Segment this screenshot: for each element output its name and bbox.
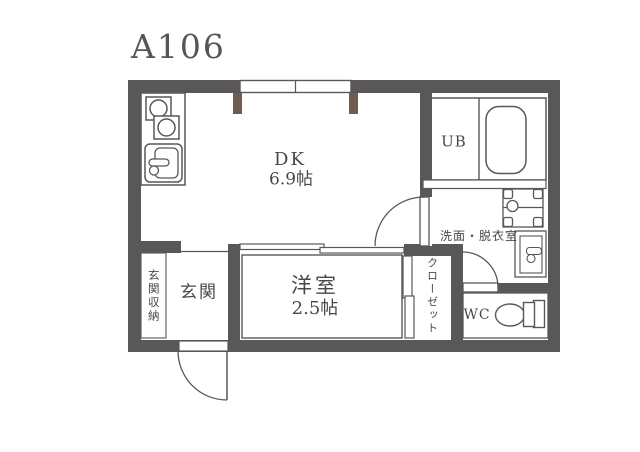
wc-door	[463, 252, 498, 293]
door-leaf	[463, 283, 498, 292]
window-pillar-right	[349, 93, 358, 114]
window-pillar-left	[233, 93, 242, 114]
room-label-youshitsu: 洋室	[291, 276, 339, 297]
kitchen-sink-icon	[145, 144, 182, 182]
swing-door-arc	[375, 197, 424, 246]
swing-door-arc	[178, 351, 227, 400]
room-label-dk: DK	[274, 151, 306, 169]
room-label-closet: クローゼット	[427, 257, 438, 335]
washbasin-icon	[515, 231, 546, 277]
toilet-icon	[496, 301, 545, 328]
room-label-genkan-storage: 玄関収納	[147, 269, 159, 323]
wall-left	[128, 80, 141, 352]
wall-genkan-youshitsu	[228, 244, 240, 340]
floor-plan: A106 DK 6.9帖 洋室 2.5帖 玄関 玄関収納 クローゼット UB 洗…	[0, 0, 640, 452]
floor-plan-drawing	[0, 0, 640, 452]
bathtub-icon	[486, 107, 526, 174]
room-label-washroom: 洗面・脱衣室	[440, 230, 518, 242]
sliding-door-panels	[240, 244, 404, 253]
closet-sliding-panels	[403, 256, 414, 338]
kitchen-counter	[141, 93, 185, 185]
room-size-youshitsu: 2.5帖	[292, 300, 339, 318]
washroom-door	[375, 197, 432, 246]
swing-door-arc	[463, 252, 498, 288]
door-gap	[179, 341, 228, 351]
room-label-ub: UB	[441, 135, 467, 150]
wall-dk-genkan	[128, 241, 181, 253]
dk-window	[233, 81, 358, 115]
room-label-wc: WC	[463, 308, 490, 322]
room-label-genkan: 玄関	[180, 285, 218, 302]
room-size-dk: 6.9帖	[269, 172, 313, 189]
unit-number-title: A106	[131, 27, 226, 66]
wall-right	[548, 80, 560, 352]
entrance-door	[178, 341, 228, 400]
door-leaf	[420, 197, 429, 246]
washing-machine-pan-icon	[503, 189, 543, 227]
ub-door-panel	[423, 180, 546, 189]
